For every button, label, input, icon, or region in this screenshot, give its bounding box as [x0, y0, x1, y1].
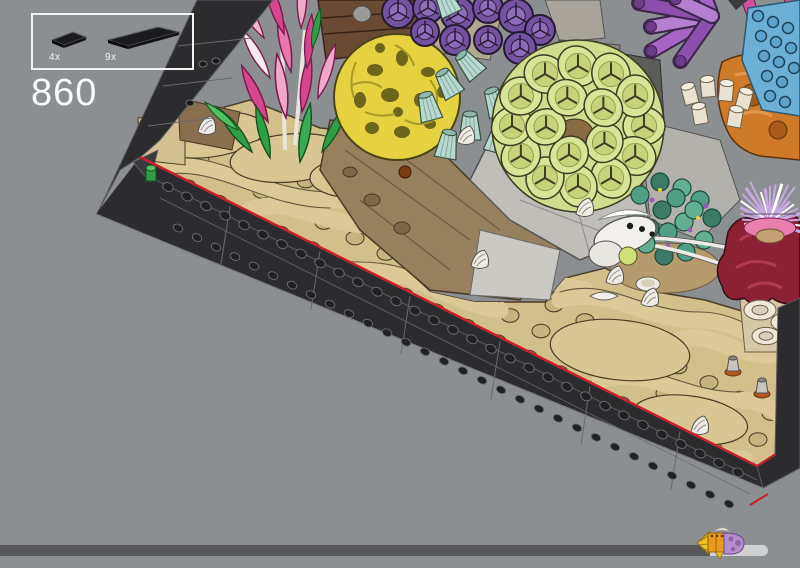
lavender-urchin-coral [740, 182, 800, 243]
part-count-label: 9x [105, 52, 117, 63]
progress-track[interactable] [0, 545, 718, 556]
part-item-small-plate: 4x [49, 27, 91, 63]
black-plate-long-icon [105, 23, 185, 51]
progress-bar[interactable]: 499 [0, 545, 768, 556]
black-plate-small-icon [49, 27, 91, 51]
lime-ball [619, 247, 637, 265]
step-number: 860 [31, 72, 97, 115]
fish-icon[interactable] [694, 526, 748, 560]
model-render [0, 0, 800, 568]
part-count-label: 4x [49, 52, 61, 63]
parts-panel: 4x 9x [31, 13, 194, 70]
gray-knob [353, 6, 371, 22]
instruction-page: 4x 9x 860 499 [0, 0, 800, 568]
part-item-long-plate: 9x [105, 23, 185, 63]
